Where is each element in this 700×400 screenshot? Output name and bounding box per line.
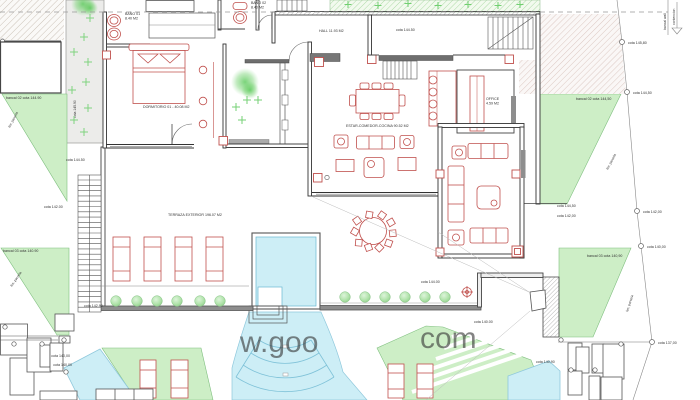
svg-text:cota 144,50: cota 144,50 [557, 204, 576, 208]
svg-text:HALL 11.93 M2: HALL 11.93 M2 [319, 29, 344, 33]
svg-text:cota 140,00: cota 140,00 [647, 245, 666, 249]
svg-text:BAÑO 01: BAÑO 01 [125, 11, 140, 16]
svg-text:cota 137,00: cota 137,00 [658, 341, 677, 345]
svg-text:cota 144.50: cota 144.50 [66, 158, 85, 162]
svg-text:bancal 03 cota 140.90: bancal 03 cota 140.90 [3, 249, 38, 253]
svg-text:cota 142,00: cota 142,00 [557, 214, 576, 218]
svg-text:com: com [420, 322, 477, 355]
svg-text:OFFICE: OFFICE [486, 97, 500, 101]
svg-text:cota 142,00: cota 142,00 [643, 210, 662, 214]
svg-text:w.goo: w.goo [239, 326, 318, 359]
svg-text:ESTAR-COMEDOR-COCINA 90.52 M2: ESTAR-COMEDOR-COCINA 90.52 M2 [346, 124, 409, 128]
svg-text:8.40 M2: 8.40 M2 [251, 6, 264, 10]
svg-text:cota 144,50: cota 144,50 [633, 91, 652, 95]
svg-text:TERRAZA EXTERIOR 196.07 M2: TERRAZA EXTERIOR 196.07 M2 [168, 213, 222, 217]
svg-text:bancal 02 cota 144.90: bancal 02 cota 144.90 [6, 96, 41, 100]
svg-text:8.40 M2: 8.40 M2 [125, 17, 138, 21]
svg-text:cota 142.00: cota 142.00 [44, 205, 63, 209]
svg-text:cota 144.00: cota 144.00 [421, 280, 440, 284]
svg-text:cota 145,80: cota 145,80 [628, 41, 647, 45]
svg-text:cota 140,00: cota 140,00 [53, 363, 72, 367]
svg-text:BAÑO 02: BAÑO 02 [251, 0, 266, 5]
svg-text:cota 140,90: cota 140,90 [536, 360, 555, 364]
svg-text:bancal 02 cota 144,50: bancal 02 cota 144,50 [576, 97, 611, 101]
svg-text:cota 140.00: cota 140.00 [474, 320, 493, 324]
svg-text:cota 144.50: cota 144.50 [396, 28, 415, 32]
svg-text:4.59 M2: 4.59 M2 [486, 102, 499, 106]
svg-text:cota 140,00: cota 140,00 [51, 354, 70, 358]
svg-text:contencion: contencion [672, 8, 676, 25]
svg-text:cota 142.90: cota 142.90 [84, 304, 103, 308]
svg-text:cota 145.90: cota 145.90 [73, 100, 77, 118]
svg-text:bancal 03 cota 140,90: bancal 03 cota 140,90 [587, 254, 622, 258]
svg-text:DORMITORIO 01 - 40.08 M2: DORMITORIO 01 - 40.08 M2 [143, 105, 189, 109]
svg-text:bancal wall: bancal wall [663, 13, 667, 30]
